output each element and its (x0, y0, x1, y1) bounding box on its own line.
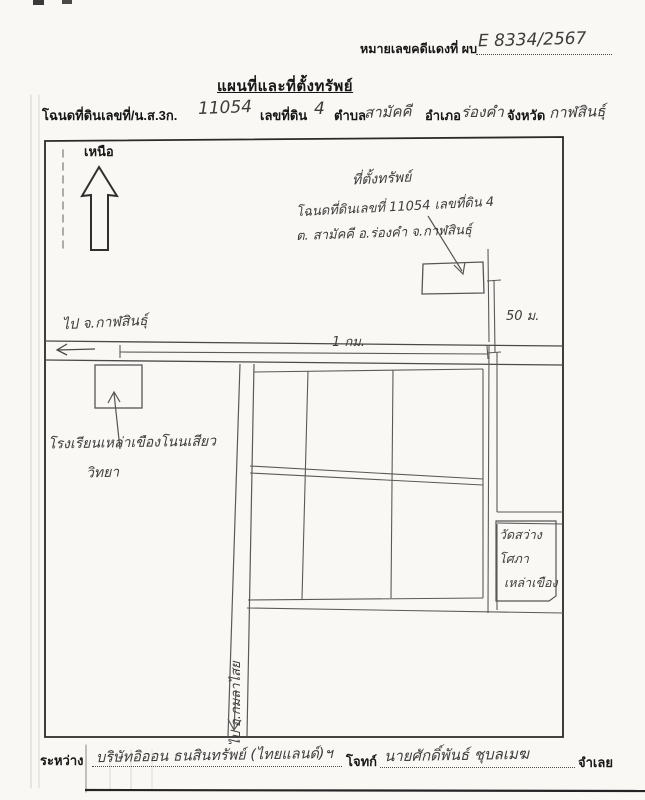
distance-50m-line (487, 249, 501, 353)
defendant-label: จำเลย (578, 752, 613, 773)
plot-grid (248, 369, 483, 600)
case-number-label: หมายเลขคดีแดงที่ ผบ (360, 39, 477, 59)
temple-name-line3: เหล่าเขือง (504, 573, 558, 593)
parcel-no-label: เลขที่ดิน (260, 105, 307, 126)
case-number-underline (476, 54, 612, 55)
subdistrict-value: สามัคคี (364, 99, 412, 125)
deed-label: โฉนดที่ดินเลขที่/น.ส.3ก. (42, 105, 177, 126)
between-label: ระหว่าง (40, 750, 83, 771)
parcel-no-value: 4 (314, 99, 325, 119)
temple-access-road (497, 512, 563, 524)
bottom-road (247, 608, 563, 613)
case-number-value: E 8334/2567 (478, 29, 587, 52)
defendant-name: นายศักดิ์พันธ์ ชุบลเมฆ (384, 742, 529, 769)
to-kamalasai-label: ไป อ.กมลาไสย (225, 636, 241, 746)
west-arrow-icon (57, 344, 95, 355)
province-value: กาฬสินธุ์ (549, 99, 606, 125)
temple-name-line1: วัดสว่าง (499, 525, 542, 545)
bottom-rule (85, 790, 645, 791)
school-name-line1: โรงเรียนเหล่าเขืองโนนเสียว (48, 431, 216, 456)
province-label: จังหวัด (507, 105, 545, 126)
deed-number: 11054 (198, 97, 253, 119)
district-value: ร่องคำ (461, 100, 504, 124)
distance-1km-label: 1 กม. (332, 331, 365, 352)
property-note-line1: ที่ตั้งทรัพย์ (351, 166, 411, 191)
page-title: แผนที่และที่ตั้งทรัพย์ (217, 74, 353, 98)
distance-50m-label: 50 ม. (506, 305, 539, 326)
north-arrow-icon (82, 167, 117, 250)
subdistrict-label: ตำบล (334, 105, 366, 126)
scanned-document-page: หมายเลขคดีแดงที่ ผบ E 8334/2567 แผนที่แล… (0, 0, 645, 800)
north-label: เหนือ (84, 141, 114, 162)
school-name-line2: วิทยา (86, 461, 120, 484)
district-label: อำเภอ (425, 105, 461, 126)
plaintiff-name: บริษัทอิออน ธนสินทรัพย์ (ไทยแลนด์)ฯ (96, 742, 333, 769)
to-kalasin-label: ไป จ.กาฬสินธุ์ (61, 310, 148, 336)
plaintiff-label: โจทก์ (346, 751, 377, 772)
distance-1km-line (120, 345, 488, 359)
temple-name-line2: โศภา (499, 549, 529, 569)
school-box (95, 365, 142, 408)
property-rectangle (422, 262, 484, 294)
